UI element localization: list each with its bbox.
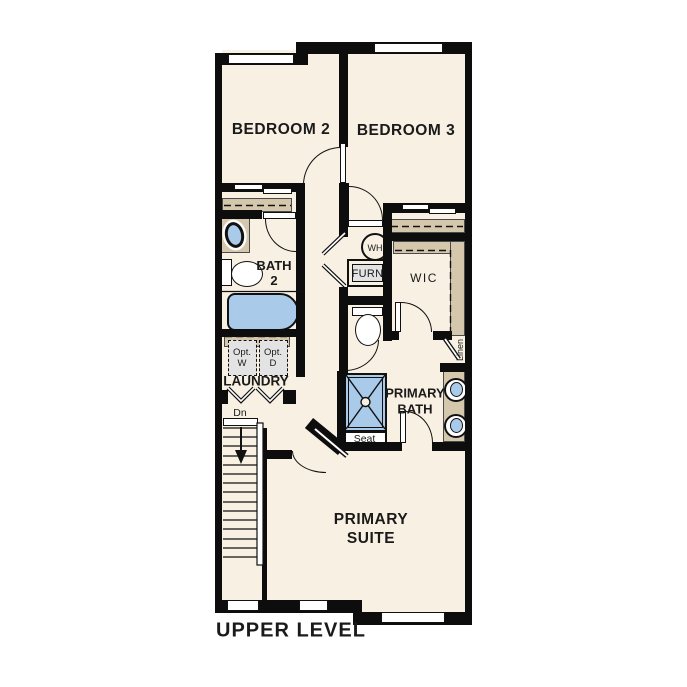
wall-bedroom-divider: [339, 42, 348, 147]
water-heater-label: WH: [368, 243, 383, 253]
linen-label: Linen: [455, 339, 465, 361]
window-bedroom2: [228, 54, 294, 64]
window-bedroom3: [374, 43, 443, 53]
vanity-sink-1-bowl: [450, 382, 463, 397]
bath2-label: BATH2: [256, 258, 291, 288]
wall-divider-stub: [339, 183, 349, 223]
bedroom2-label: BEDROOM 2: [232, 121, 330, 139]
stairs-top-riser: [223, 418, 258, 426]
optional-washer-label: Opt.W: [233, 347, 251, 369]
primary-suite-line1: PRIMARY: [334, 511, 408, 528]
bedroom2-closet-slider-2: [263, 188, 292, 194]
wall-laundry-stub-left: [219, 390, 228, 404]
bedroom3-label: BEDROOM 3: [357, 122, 455, 140]
wall-suite-entry: [262, 450, 292, 459]
opt-d-line2: D: [270, 358, 277, 369]
bedroom2-closet-slider-1: [234, 184, 263, 190]
wic-label: WIC: [410, 271, 438, 285]
wall-utility-wic-left: [383, 203, 392, 341]
wall-hall-left: [296, 183, 305, 377]
wall-utility-left-top: [339, 221, 348, 237]
bedroom3-closet-shelf: [390, 219, 465, 233]
plan-title: UPPER LEVEL: [216, 620, 366, 643]
primary-suite-line2: SUITE: [347, 530, 395, 547]
bath2-label-line1: BATH: [256, 258, 291, 273]
bath2-door-leaf: [263, 212, 296, 219]
primary-bath-line1: PRIMARY: [385, 386, 444, 401]
primary-bath-line2: BATH: [397, 401, 432, 416]
window-bottom-2: [299, 600, 328, 611]
wic-right-shelf: [450, 241, 465, 336]
wall-wic-bottom-right: [433, 331, 452, 340]
window-bottom-1: [227, 600, 259, 611]
wall-bath2-top: [215, 210, 262, 219]
wall-closet-wic-divider: [383, 233, 465, 241]
optional-dryer-label: Opt.D: [264, 347, 282, 369]
wall-primary-bath-bottom-right: [432, 442, 472, 451]
primary-shower: [344, 373, 387, 432]
primary-suite-label: PRIMARYSUITE: [334, 510, 408, 548]
wall-laundry-stub-right: [283, 390, 296, 404]
opt-d-line1: Opt.: [264, 347, 282, 358]
laundry-label: LAUNDRY: [223, 374, 289, 389]
shower-seat-label: Seat: [354, 433, 376, 445]
wall-exterior-right: [465, 42, 472, 625]
wic-top-shelf: [393, 241, 451, 254]
opt-w-line2: W: [238, 358, 247, 369]
bathtub: [227, 293, 299, 331]
vanity-sink-2-bowl: [450, 418, 463, 433]
wall-shower-left: [337, 371, 346, 445]
bedroom3-closet-slider-1: [402, 204, 429, 210]
furnace-label: FURN: [352, 268, 384, 280]
window-primary-suite: [381, 612, 445, 623]
bedroom3-door-leaf: [348, 220, 383, 227]
primary-bath-label: PRIMARYBATH: [385, 386, 444, 417]
opt-w-line1: Opt.: [233, 347, 251, 358]
bath2-label-line2: 2: [270, 273, 277, 288]
shower-inner-line: [348, 377, 383, 428]
wall-utility-bottom: [339, 296, 392, 305]
stairs-down-label: Dn: [233, 407, 246, 419]
floor-plan: BEDROOM 2 BEDROOM 3 BATH2 LAUNDRY WIC PR…: [0, 0, 687, 687]
bedroom3-closet-slider-2: [429, 208, 456, 214]
wall-bath2-laundry-divider: [215, 329, 305, 337]
wall-vanity-top: [440, 363, 472, 372]
wall-wic-bottom-left: [383, 331, 399, 340]
